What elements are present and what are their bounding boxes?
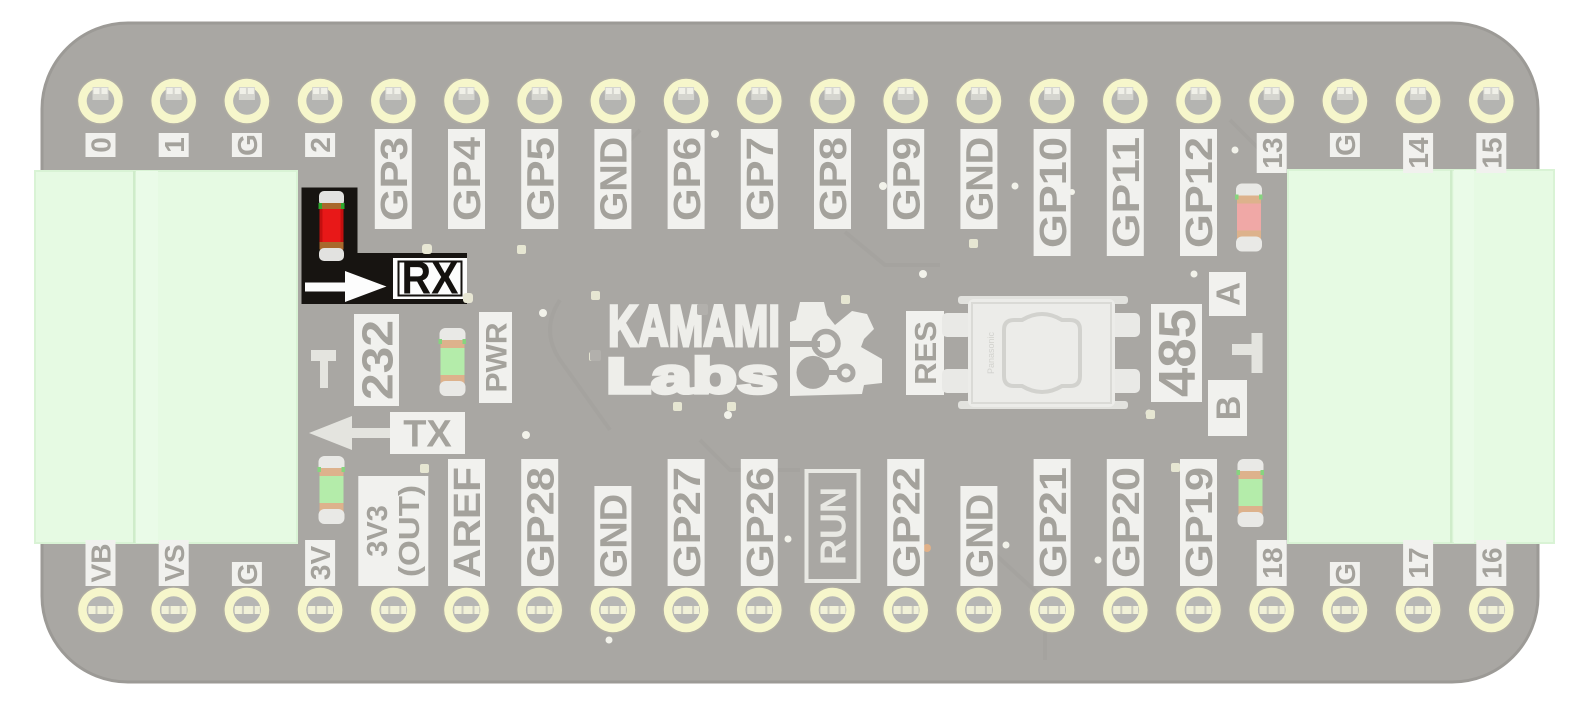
svg-text:GP26: GP26: [740, 467, 782, 578]
svg-text:GP8: GP8: [813, 137, 855, 221]
svg-text:G: G: [1330, 563, 1361, 585]
svg-text:GP4: GP4: [447, 137, 489, 221]
svg-text:GP5: GP5: [520, 137, 562, 221]
svg-text:RX: RX: [402, 253, 459, 304]
svg-text:GND: GND: [594, 137, 636, 221]
svg-text:2: 2: [305, 137, 336, 153]
svg-text:17: 17: [1403, 547, 1434, 578]
svg-text:15: 15: [1476, 137, 1507, 168]
svg-text:AREF: AREF: [447, 467, 489, 578]
svg-text:Panasonic: Panasonic: [986, 331, 996, 374]
svg-text:GP21: GP21: [1033, 467, 1075, 578]
svg-text:1: 1: [159, 137, 190, 153]
svg-text:B: B: [1210, 396, 1248, 421]
svg-text:VS: VS: [159, 544, 190, 581]
svg-text:GP22: GP22: [886, 467, 928, 578]
svg-text:3V3: 3V3: [362, 505, 394, 557]
svg-text:GP19: GP19: [1179, 467, 1221, 578]
svg-text:(OUT): (OUT): [394, 485, 426, 577]
svg-text:GND: GND: [960, 494, 1002, 578]
svg-text:GP28: GP28: [520, 467, 562, 578]
svg-text:14: 14: [1403, 137, 1434, 169]
svg-text:Labs: Labs: [606, 348, 778, 404]
svg-text:16: 16: [1476, 547, 1507, 578]
svg-text:18: 18: [1257, 547, 1288, 578]
svg-text:A: A: [1209, 282, 1246, 306]
svg-text:PWR: PWR: [480, 322, 513, 392]
svg-text:TX: TX: [403, 414, 452, 456]
svg-text:GP10: GP10: [1033, 137, 1075, 248]
svg-text:GND: GND: [594, 494, 636, 578]
svg-text:VB: VB: [86, 544, 117, 583]
svg-text:GP6: GP6: [667, 137, 709, 221]
svg-text:232: 232: [353, 320, 402, 400]
svg-text:GP20: GP20: [1106, 467, 1148, 578]
svg-text:GP11: GP11: [1106, 137, 1148, 248]
svg-text:GP3: GP3: [374, 137, 416, 221]
svg-text:RES: RES: [908, 321, 943, 385]
svg-text:G: G: [1330, 134, 1361, 156]
svg-text:GP7: GP7: [740, 137, 782, 221]
svg-text:485: 485: [1149, 309, 1207, 397]
svg-text:RUN: RUN: [812, 487, 853, 565]
svg-text:GP9: GP9: [886, 137, 928, 221]
svg-text:G: G: [232, 563, 263, 585]
svg-text:13: 13: [1257, 137, 1288, 168]
svg-text:GP12: GP12: [1179, 137, 1221, 248]
svg-text:GND: GND: [960, 137, 1002, 221]
svg-text:GP27: GP27: [667, 467, 709, 578]
svg-text:3V: 3V: [305, 546, 336, 581]
svg-text:G: G: [232, 134, 263, 156]
svg-text:0: 0: [86, 137, 117, 153]
